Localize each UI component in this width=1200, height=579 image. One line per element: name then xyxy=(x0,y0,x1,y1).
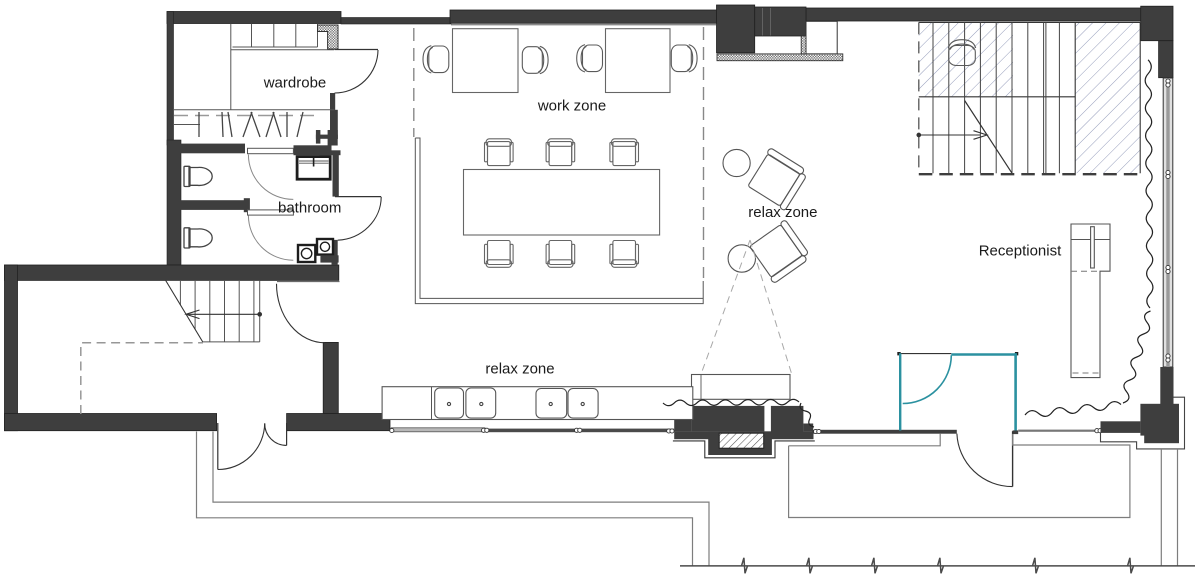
svg-text:bathroom: bathroom xyxy=(278,200,341,217)
svg-text:relax zone: relax zone xyxy=(748,204,817,221)
svg-text:wardrobe: wardrobe xyxy=(263,75,327,92)
svg-text:relax zone: relax zone xyxy=(485,361,554,378)
svg-text:Receptionist: Receptionist xyxy=(979,243,1062,260)
svg-text:work zone: work zone xyxy=(537,98,606,115)
